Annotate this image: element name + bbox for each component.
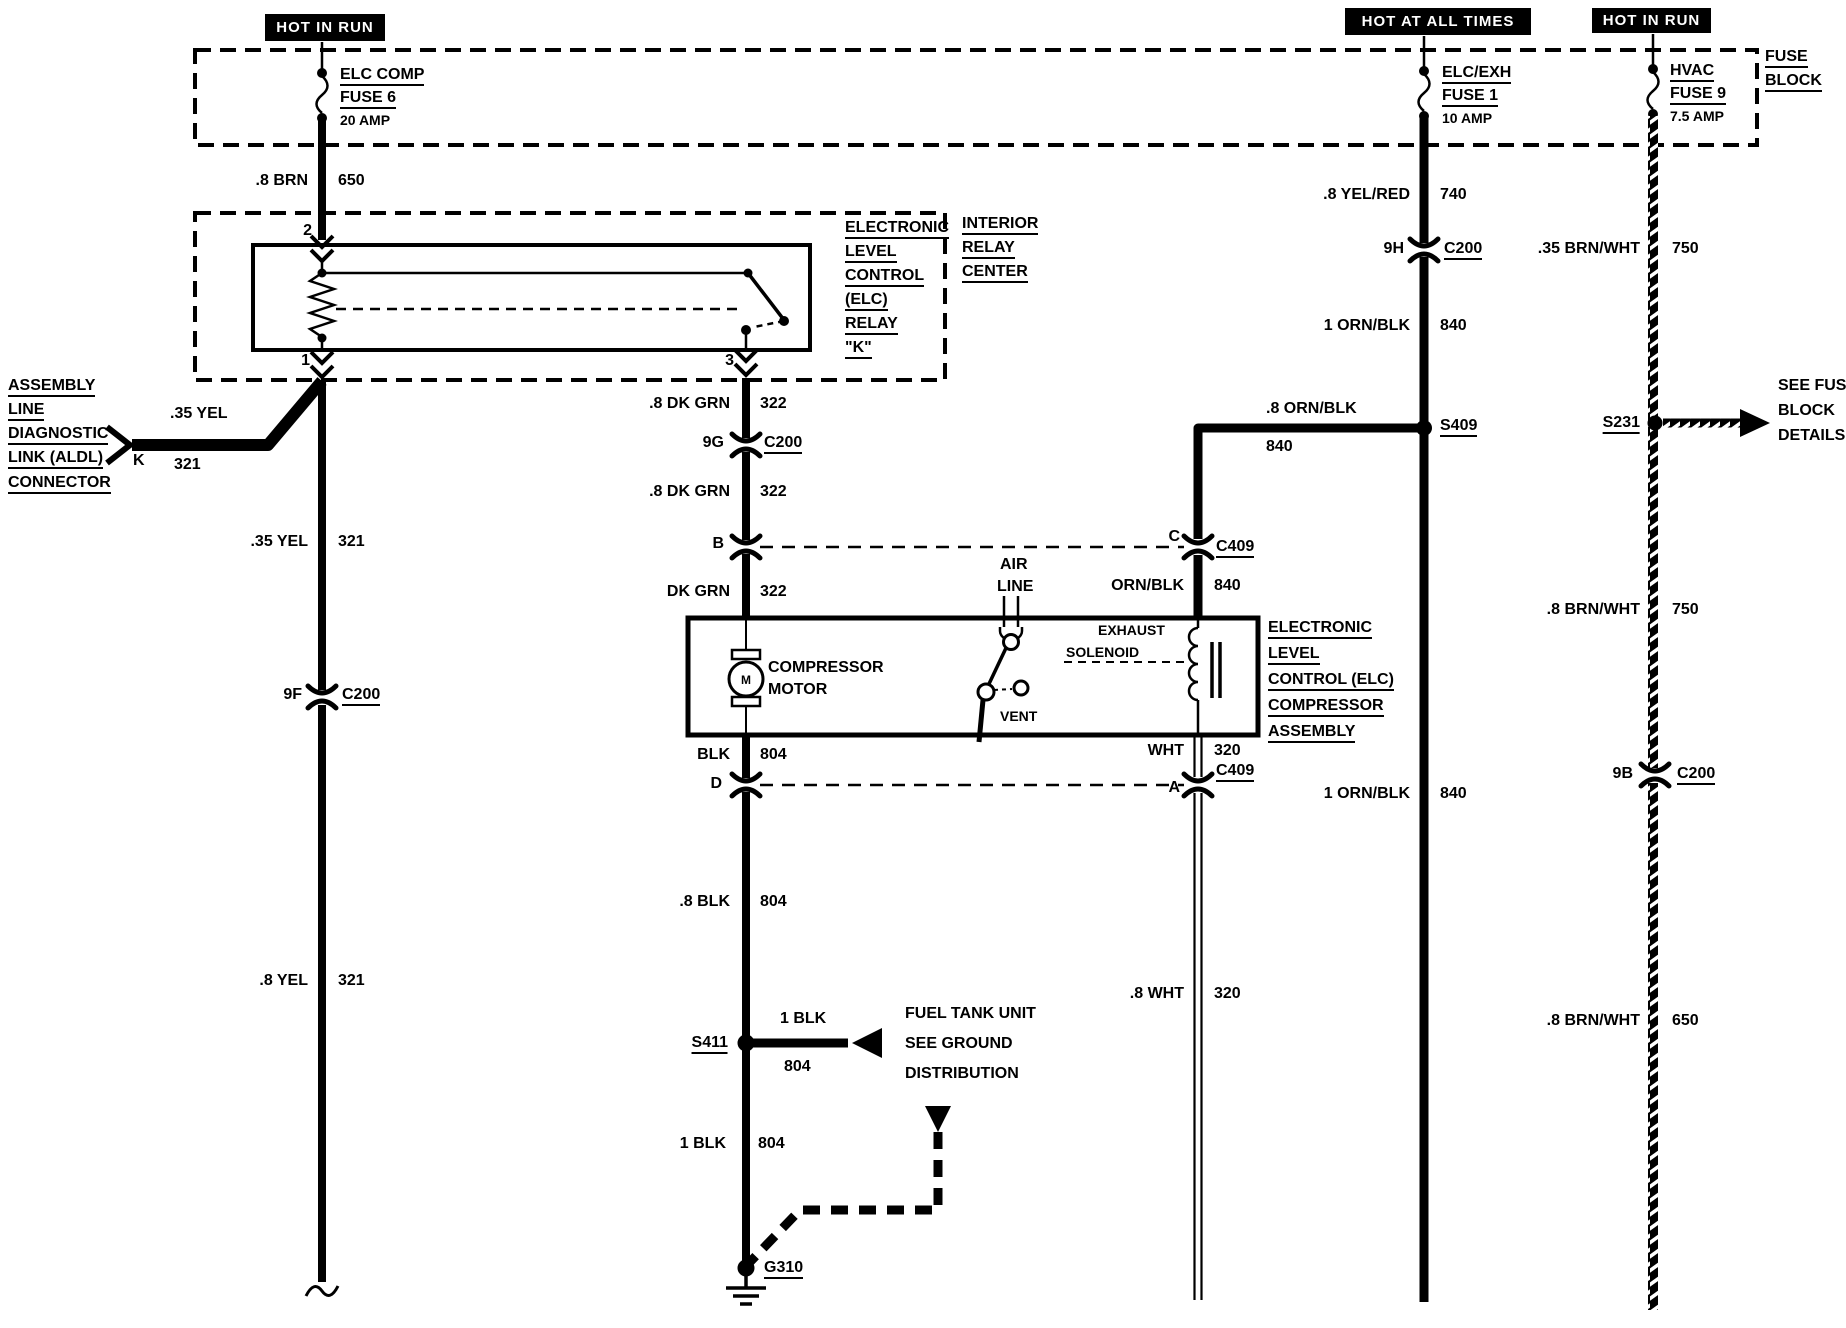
elc-wiring-diagram: HOT IN RUN HOT AT ALL TIMES HOT IN RUN F… — [0, 0, 1846, 1328]
elc-relay-box — [253, 245, 810, 350]
wire-circuit-dkgrn-a: 322 — [760, 395, 787, 412]
elc-relay-name-line3: CONTROL — [845, 267, 924, 287]
fuse1-number: FUSE 6 — [340, 89, 396, 109]
connector-9h-name: C200 — [1444, 240, 1482, 260]
aldl-name-line4: LINK (ALDL) — [8, 449, 103, 469]
diagram-graphics — [0, 0, 1846, 1328]
connector-c-pin: C — [1168, 528, 1180, 545]
fuse-block-label-line1: FUSE — [1765, 48, 1808, 68]
note-fuel-tank-line1: FUEL TANK UNIT — [905, 1005, 1036, 1022]
wire-circuit-yelred: 740 — [1440, 186, 1467, 203]
compressor-assembly-name-line2: LEVEL — [1268, 645, 1320, 665]
wire-circuit-brn: 650 — [338, 172, 365, 189]
ground-g310: G310 — [764, 1259, 803, 1279]
wire-gauge-blk-a: BLK — [697, 746, 730, 763]
elc-relay-name-line2: LEVEL — [845, 243, 897, 263]
wire-circuit-wht-a: 320 — [1214, 742, 1241, 759]
wire-circuit-brnwht-b: 750 — [1672, 601, 1699, 618]
elc-relay-name-line1: ELECTRONIC — [845, 219, 949, 239]
aldl-name-line5: CONNECTOR — [8, 474, 111, 494]
fuse3-number: FUSE 9 — [1670, 85, 1726, 105]
fuse3-name: HVAC — [1670, 62, 1714, 82]
wire-gauge-ornblk-b: 1 ORN/BLK — [1324, 785, 1410, 802]
interior-relay-center-line3: CENTER — [962, 263, 1028, 283]
aldl-name-line1: ASSEMBLY — [8, 377, 95, 397]
middle-column-wire — [732, 378, 760, 1268]
wire-circuit-ornblk-c: 840 — [1214, 577, 1241, 594]
compressor-motor-label-line2: MOTOR — [768, 681, 827, 698]
aldl-name-line2: LINE — [8, 401, 44, 421]
wire-circuit-ornblk-b: 840 — [1440, 785, 1467, 802]
fuse-hvac-symbol — [1648, 34, 1659, 119]
wire-gauge-blk-c: 1 BLK — [780, 1010, 826, 1027]
wire-circuit-yel-a: 321 — [338, 533, 365, 550]
compressor-motor-label-line1: COMPRESSOR — [768, 659, 884, 676]
note-fuse-details-line2: BLOCK — [1778, 402, 1835, 419]
connector-a-name: C409 — [1216, 762, 1254, 782]
elc-relay-name-line6: "K" — [845, 339, 872, 359]
wire-gauge-brnwht-c: .8 BRN/WHT — [1547, 1012, 1640, 1029]
splice-s231: S231 — [1603, 414, 1640, 434]
wire-gauge-ornblk-h: .8 ORN/BLK — [1266, 400, 1357, 417]
relay-terminal-2: 2 — [303, 222, 312, 239]
exhaust-solenoid-label-line2: SOLENOID — [1066, 644, 1139, 661]
connector-d-pin: D — [710, 775, 722, 792]
elc-relay-internals — [310, 236, 789, 377]
wire-circuit-wht-b: 320 — [1214, 985, 1241, 1002]
wire-gauge-yel-aldl: .35 YEL — [170, 405, 228, 422]
elc-relay-name-line5: RELAY — [845, 315, 898, 335]
power-header-hot-in-run-left: HOT IN RUN — [265, 14, 385, 41]
connector-9g-pin: 9G — [703, 434, 724, 451]
note-fuse-details-line1: SEE FUSE — [1778, 377, 1846, 394]
compressor-assembly-name-line1: ELECTRONIC — [1268, 619, 1372, 639]
wire-gauge-dkgrn-a: .8 DK GRN — [649, 395, 730, 412]
aldl-terminal-k: K — [133, 452, 145, 469]
fuse2-rating: 10 AMP — [1442, 110, 1492, 127]
wire-circuit-yel-b: 321 — [338, 972, 365, 989]
wire-gauge-ornblk-c: ORN/BLK — [1111, 577, 1184, 594]
wire-gauge-yel-b: .8 YEL — [259, 972, 308, 989]
connector-9b-name: C200 — [1677, 765, 1715, 785]
wire-circuit-yel-aldl: 321 — [174, 456, 201, 473]
note-fuse-details-line3: DETAILS — [1778, 427, 1845, 444]
fuse-block-outline — [195, 50, 1757, 145]
wire-circuit-blk-b: 804 — [760, 893, 787, 910]
wire-gauge-wht-b: .8 WHT — [1130, 985, 1184, 1002]
note-fuel-tank-line2: SEE GROUND — [905, 1035, 1013, 1052]
wire-gauge-brn: .8 BRN — [256, 172, 308, 189]
fuse2-number: FUSE 1 — [1442, 87, 1498, 107]
connector-9b-pin: 9B — [1613, 765, 1633, 782]
relay-terminal-3: 3 — [725, 352, 734, 369]
compressor-assembly-name-line4: COMPRESSOR — [1268, 697, 1384, 717]
compressor-assembly-name-line3: CONTROL (ELC) — [1268, 671, 1394, 691]
power-header-hot-in-run-right: HOT IN RUN — [1592, 8, 1711, 33]
fuse1-rating: 20 AMP — [340, 112, 390, 129]
elc-exh-column-wire — [1410, 118, 1438, 1302]
wire-circuit-blk-c: 804 — [784, 1058, 811, 1075]
wire-gauge-dkgrn-b: .8 DK GRN — [649, 483, 730, 500]
relay-terminal-1: 1 — [301, 352, 310, 369]
elc-relay-name-line4: (ELC) — [845, 291, 888, 311]
fuse1-name: ELC COMP — [340, 66, 424, 86]
motor-m-letter: M — [741, 672, 751, 689]
wire-circuit-ornblk-h: 840 — [1266, 438, 1293, 455]
wire-gauge-brnwht-a: .35 BRN/WHT — [1538, 240, 1640, 257]
wire-gauge-yelred: .8 YEL/RED — [1323, 186, 1410, 203]
splice-s409: S409 — [1440, 417, 1477, 437]
wire-circuit-brnwht-c: 650 — [1672, 1012, 1699, 1029]
power-header-hot-at-all-times: HOT AT ALL TIMES — [1345, 8, 1531, 35]
fuse-elc-comp-symbol — [317, 42, 328, 240]
hvac-column-wire — [1641, 116, 1770, 1310]
connector-c-name: C409 — [1216, 538, 1254, 558]
interior-relay-center-line2: RELAY — [962, 239, 1015, 259]
interior-relay-center-line1: INTERIOR — [962, 215, 1038, 235]
fuse-block-label-line2: BLOCK — [1765, 72, 1822, 92]
air-line-label-line2: LINE — [997, 578, 1033, 595]
connector-b-pin: B — [712, 535, 724, 552]
fuse2-name: ELC/EXH — [1442, 64, 1511, 84]
connector-9g-name: C200 — [764, 434, 802, 454]
wire-circuit-dkgrn-b: 322 — [760, 483, 787, 500]
wire-circuit-dkgrn-c: 322 — [760, 583, 787, 600]
wht-wire — [1184, 735, 1212, 1300]
aldl-name-line3: DIAGNOSTIC — [8, 425, 108, 445]
connector-9h-pin: 9H — [1384, 240, 1404, 257]
left-column-wire — [306, 380, 338, 1296]
connector-9f-pin: 9F — [283, 686, 302, 703]
aldl-wire — [107, 381, 322, 463]
wire-gauge-blk-d: 1 BLK — [680, 1135, 726, 1152]
splice-s411: S411 — [692, 1034, 728, 1054]
wire-circuit-ornblk-a: 840 — [1440, 317, 1467, 334]
compressor-assembly-name-line5: ASSEMBLY — [1268, 723, 1355, 743]
wire-circuit-brnwht-a: 750 — [1672, 240, 1699, 257]
exhaust-solenoid-label-line1: EXHAUST — [1098, 622, 1165, 639]
wire-gauge-wht-a: WHT — [1148, 742, 1184, 759]
wire-circuit-blk-a: 804 — [760, 746, 787, 763]
compressor-assembly-box — [688, 618, 1258, 735]
wire-gauge-brnwht-b: .8 BRN/WHT — [1547, 601, 1640, 618]
connector-9f-name: C200 — [342, 686, 380, 706]
wire-gauge-ornblk-a: 1 ORN/BLK — [1324, 317, 1410, 334]
wire-gauge-dkgrn-c: DK GRN — [667, 583, 730, 600]
wire-gauge-yel-a: .35 YEL — [250, 533, 308, 550]
connector-a-pin: A — [1168, 779, 1180, 796]
vent-label: VENT — [1000, 708, 1037, 725]
air-line-label-line1: AIR — [1000, 556, 1028, 573]
fuse3-rating: 7.5 AMP — [1670, 108, 1724, 125]
wire-circuit-blk-d: 804 — [758, 1135, 785, 1152]
wire-gauge-blk-b: .8 BLK — [679, 893, 730, 910]
note-fuel-tank-line3: DISTRIBUTION — [905, 1065, 1019, 1082]
